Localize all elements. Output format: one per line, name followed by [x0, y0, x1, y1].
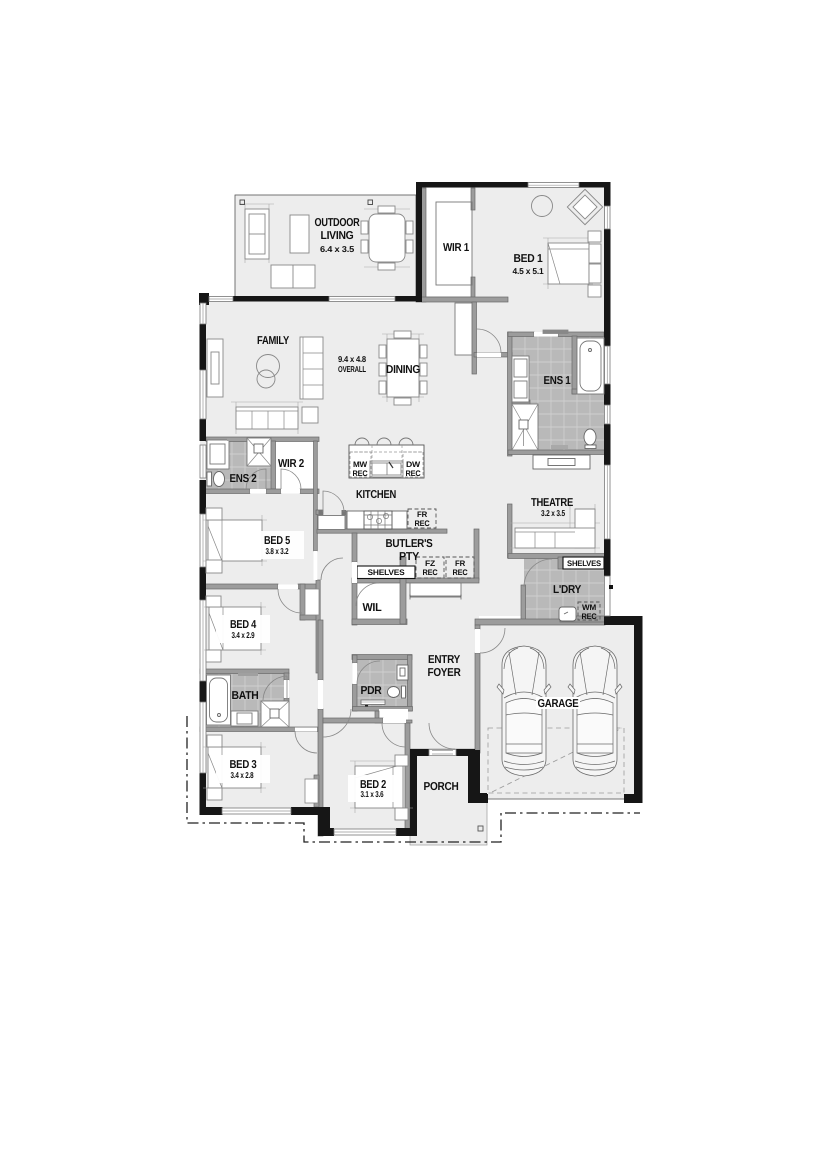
- svg-text:ENS 2: ENS 2: [230, 473, 257, 485]
- svg-text:OVERALL: OVERALL: [338, 364, 366, 374]
- svg-text:9.4 x 4.8: 9.4 x 4.8: [338, 354, 366, 364]
- svg-text:DINING: DINING: [386, 364, 420, 376]
- svg-text:REC: REC: [353, 469, 368, 478]
- svg-text:WIR 2: WIR 2: [278, 458, 304, 470]
- svg-text:WIL: WIL: [363, 602, 382, 614]
- svg-text:BATH: BATH: [232, 690, 259, 702]
- svg-text:ENTRY: ENTRY: [428, 654, 461, 666]
- svg-text:SHELVES: SHELVES: [567, 559, 602, 568]
- svg-text:FR: FR: [417, 510, 427, 519]
- svg-text:3.1 x 3.6: 3.1 x 3.6: [361, 789, 384, 799]
- svg-text:6.4 x 3.5: 6.4 x 3.5: [320, 244, 354, 254]
- svg-text:PORCH: PORCH: [424, 781, 459, 793]
- svg-text:FAMILY: FAMILY: [257, 335, 290, 347]
- svg-text:FOYER: FOYER: [428, 667, 462, 679]
- svg-text:3.4 x 2.9: 3.4 x 2.9: [232, 630, 255, 640]
- svg-text:L'DRY: L'DRY: [553, 584, 582, 596]
- svg-text:PDR: PDR: [361, 685, 383, 697]
- svg-text:BUTLER'S: BUTLER'S: [386, 538, 434, 550]
- svg-text:PTY: PTY: [399, 551, 420, 563]
- svg-text:3.4 x 2.8: 3.4 x 2.8: [231, 770, 254, 780]
- svg-text:WIR 1: WIR 1: [443, 242, 470, 254]
- svg-text:REC: REC: [453, 568, 468, 577]
- svg-text:3.2 x 3.5: 3.2 x 3.5: [541, 508, 565, 518]
- svg-text:FR: FR: [455, 559, 465, 568]
- svg-text:DW: DW: [406, 460, 421, 469]
- svg-text:REC: REC: [406, 469, 421, 478]
- svg-text:4.5 x 5.1: 4.5 x 5.1: [513, 266, 544, 276]
- svg-text:WM: WM: [582, 603, 597, 612]
- svg-text:REC: REC: [582, 612, 597, 621]
- svg-text:GARAGE: GARAGE: [538, 698, 580, 710]
- svg-text:MW: MW: [353, 460, 368, 469]
- svg-text:BED 1: BED 1: [514, 253, 544, 265]
- svg-text:FZ: FZ: [425, 559, 435, 568]
- svg-text:OUTDOOR: OUTDOOR: [315, 217, 361, 229]
- svg-text:KITCHEN: KITCHEN: [356, 489, 396, 501]
- svg-text:SHELVES: SHELVES: [368, 568, 406, 577]
- svg-text:LIVING: LIVING: [321, 230, 354, 242]
- svg-text:REC: REC: [415, 519, 430, 528]
- svg-text:ENS 1: ENS 1: [544, 375, 572, 387]
- svg-text:3.8 x 3.2: 3.8 x 3.2: [266, 546, 289, 556]
- svg-text:REC: REC: [423, 568, 438, 577]
